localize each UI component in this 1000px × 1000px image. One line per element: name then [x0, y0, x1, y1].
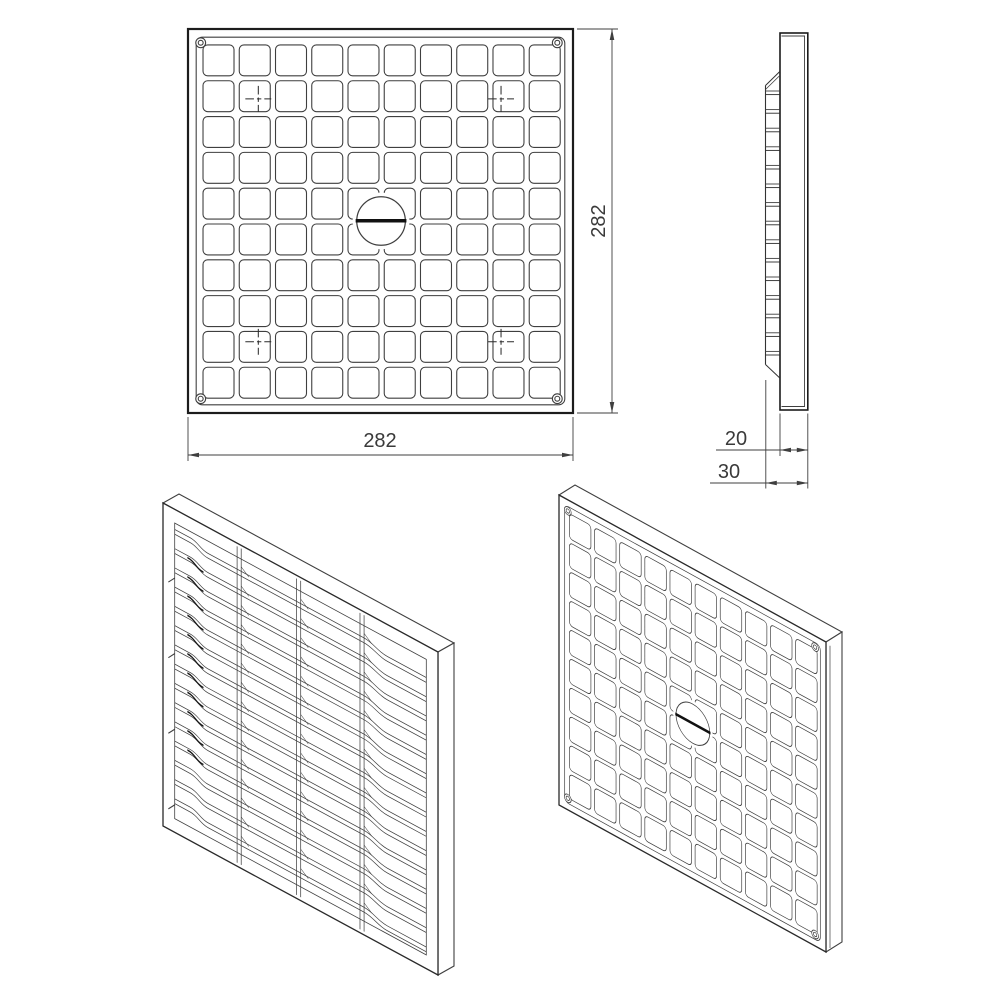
side-profile-view	[766, 33, 808, 410]
isometric-front-grid-view	[559, 485, 842, 952]
dim-depth-label: 30	[718, 461, 740, 483]
technical-drawing-page: 282 282 20 30	[0, 0, 1000, 1000]
dim-front-width-label: 282	[363, 430, 396, 452]
dim-front-height-label: 282	[588, 204, 610, 237]
vent-technical-drawing-canvas: 282 282 20 30	[0, 0, 1000, 1000]
isometric-back-louver-view	[163, 494, 454, 975]
front-orthographic-view	[188, 29, 573, 413]
dim-thickness-label: 20	[725, 428, 747, 450]
